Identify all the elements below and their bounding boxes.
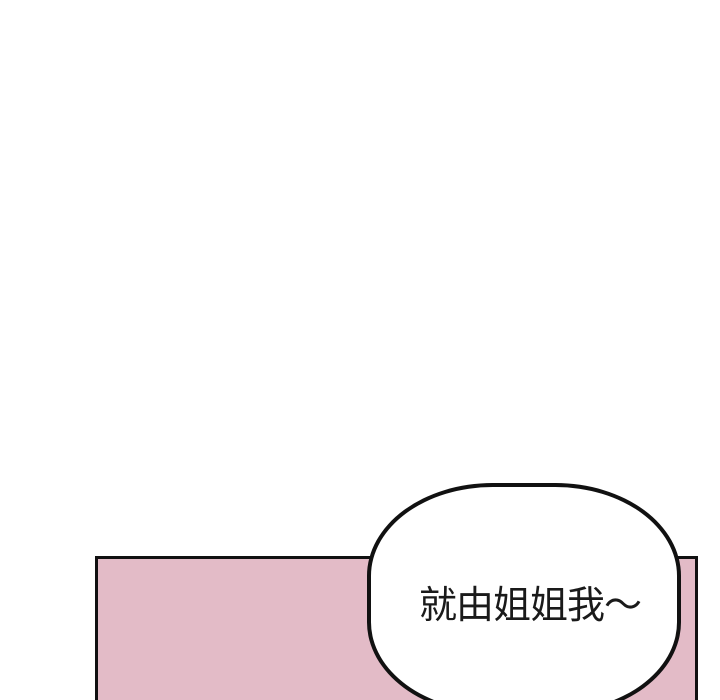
speech-bubble-text: 就由姐姐我～ xyxy=(419,587,641,625)
speech-bubble: 就由姐姐我～ xyxy=(367,483,681,700)
comic-page: 就由姐姐我～ xyxy=(0,0,720,700)
